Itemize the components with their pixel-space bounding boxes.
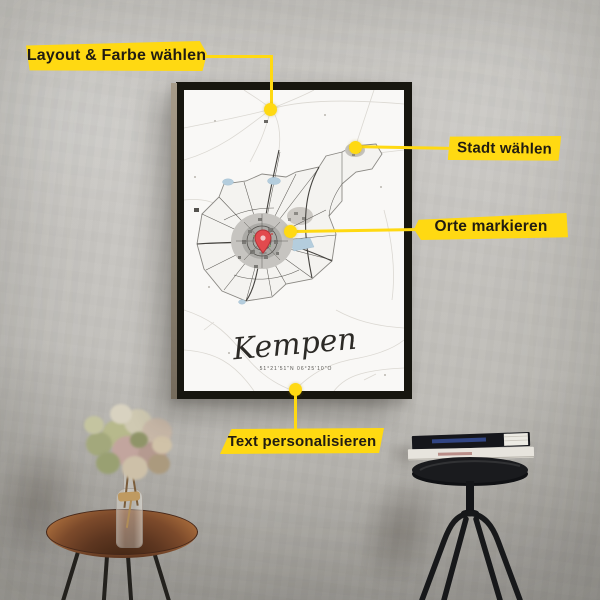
- poster-frame: Kempen 51°21'51"N 06°25'10"O: [176, 82, 412, 399]
- twine-bow: [118, 491, 141, 502]
- callout-stadt-waehlen[interactable]: Stadt wählen: [448, 134, 561, 162]
- map-poster: Kempen 51°21'51"N 06°25'10"O: [184, 90, 404, 391]
- city-map-graphic: Kempen 51°21'51"N 06°25'10"O: [184, 90, 404, 391]
- bloom: [84, 416, 104, 434]
- bloom: [148, 454, 170, 474]
- callout-orte-markieren[interactable]: Orte markieren: [414, 213, 568, 240]
- bloom: [122, 456, 148, 480]
- stool-legs: [422, 513, 520, 600]
- product-scene: Kempen 51°21'51"N 06°25'10"O Layout & Fa…: [0, 0, 600, 600]
- personalize-leader-line: [294, 390, 297, 431]
- callout-layout-farbe[interactable]: Layout & Farbe wählen: [26, 41, 207, 71]
- layout-leader-line-vertical: [270, 56, 273, 104]
- bloom: [96, 452, 120, 474]
- frame-wood-edge: [171, 83, 177, 399]
- layout-leader-line-horizontal: [205, 55, 273, 58]
- personalize-hotspot-dot: [289, 383, 302, 396]
- places-hotspot-dot: [284, 225, 297, 238]
- table-leg: [61, 551, 80, 600]
- stool-with-books: [398, 428, 546, 600]
- dried-hydrangea-bouquet: [82, 404, 184, 496]
- table-leg: [126, 556, 134, 600]
- poster-coordinates: 51°21'51"N 06°25'10"O: [260, 366, 333, 372]
- layout-hotspot-dot: [264, 103, 277, 116]
- table-leg: [101, 556, 109, 600]
- stool-column: [466, 481, 474, 512]
- bloom: [130, 432, 148, 448]
- city-hotspot-dot: [349, 141, 362, 154]
- callout-text-personalisieren[interactable]: Text personalisieren: [220, 428, 384, 454]
- table-leg: [152, 551, 171, 600]
- bloom: [110, 404, 132, 424]
- bloom: [152, 436, 172, 454]
